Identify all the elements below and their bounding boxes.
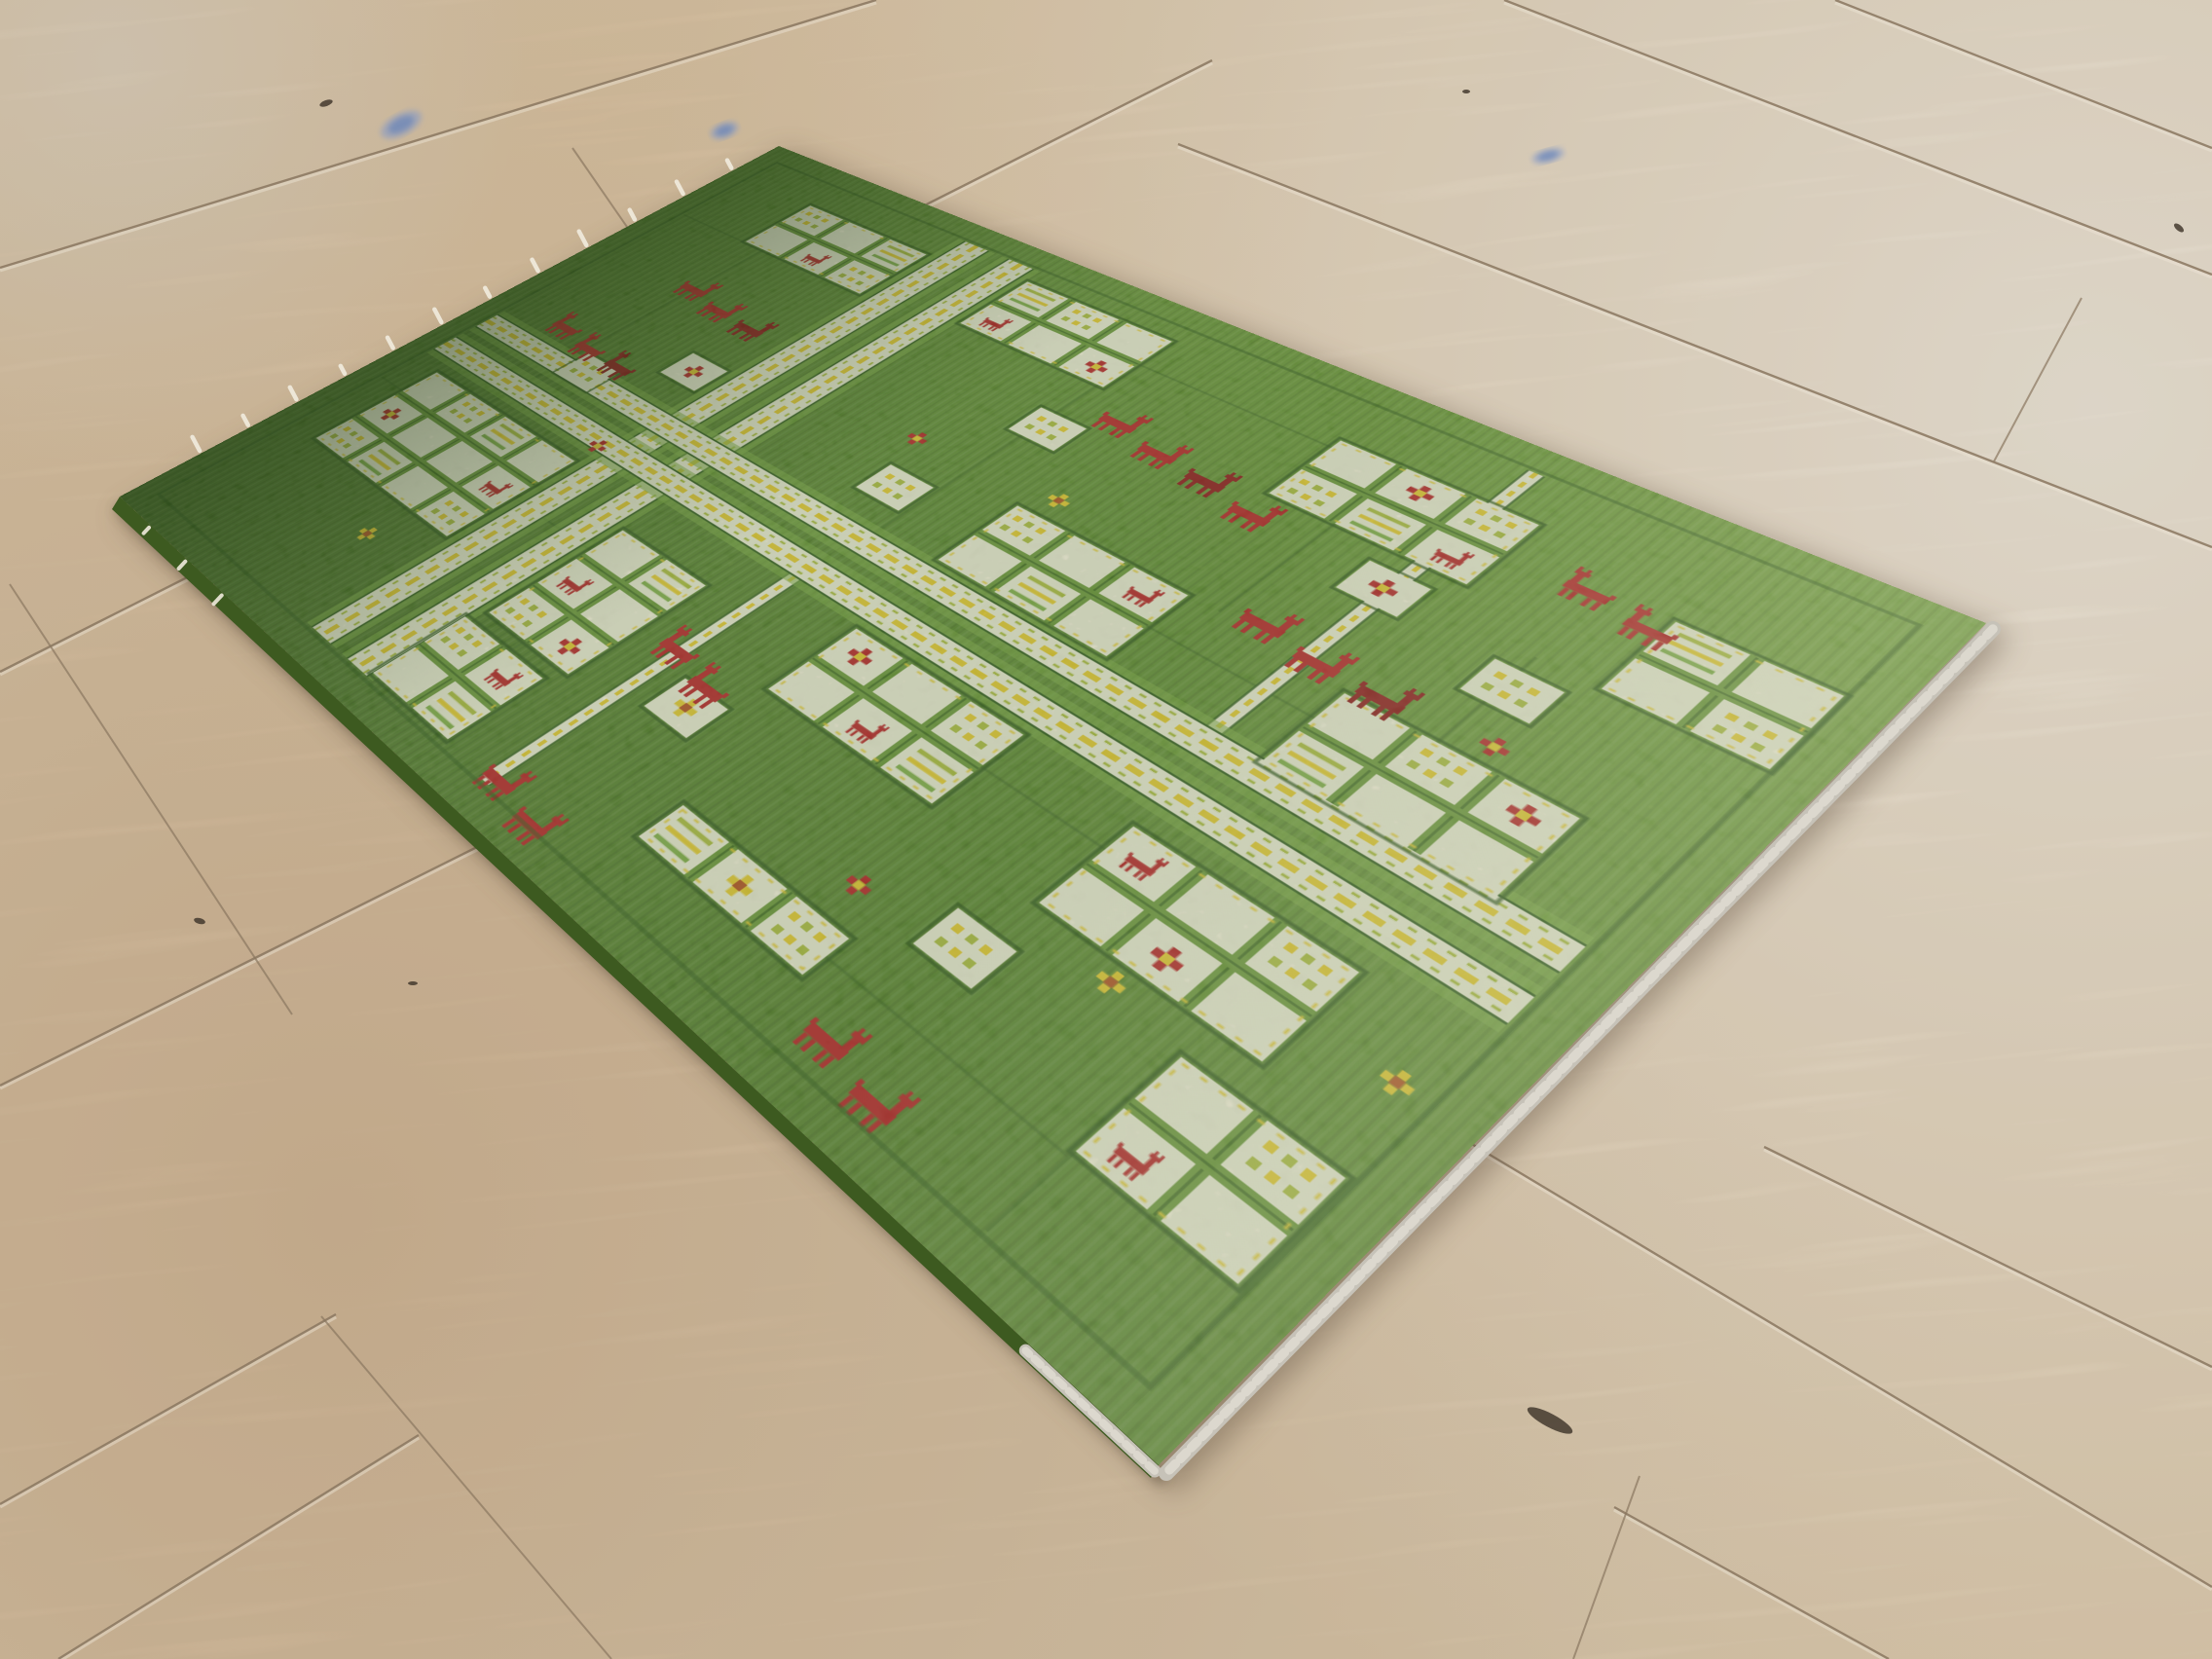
photo-canvas: Green hand-knotted gabbeh wool mat with …	[0, 0, 2212, 1659]
wood-knot	[408, 981, 418, 985]
wood-knot	[1462, 90, 1470, 93]
